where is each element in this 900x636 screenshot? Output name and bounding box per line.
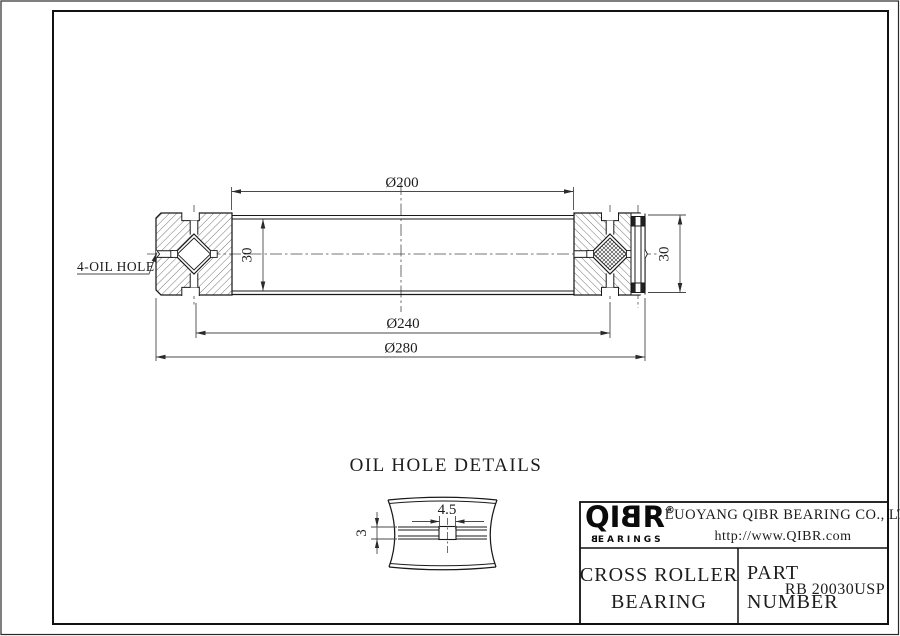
mirrored-b-glyph: B [620, 503, 642, 532]
detail-view: OIL HOLE DETAILS 4.5 3 [350, 455, 543, 570]
drawing-sheet: Ø200 30 30 Ø240 Ø280 [0, 0, 900, 636]
dim-hole-depth: 3 [354, 512, 397, 554]
company-name: LUOYANG QIBR BEARING CO., LTD [665, 507, 900, 523]
left-ring-section [156, 212, 232, 296]
dim-width-left: 30 [240, 219, 266, 291]
dim-outer-value: Ø280 [384, 341, 417, 357]
registered-mark: ® [665, 505, 675, 516]
right-ring-section [574, 212, 647, 296]
oil-hole-callout-label: 4-OIL HOLE [77, 259, 155, 274]
part-number-value: RB 20030USP [785, 581, 885, 598]
brand-wordmark: QIBR® [585, 503, 675, 532]
dim-pitch: Ø240 [196, 303, 610, 338]
brand-subtitle: BEARINGS [588, 535, 675, 545]
dim-width-left-value: 30 [240, 248, 256, 263]
engineering-drawing: Ø200 30 30 Ø240 Ø280 [0, 0, 900, 636]
company-url: http://www.QIBR.com [715, 529, 852, 544]
edge-notch [645, 250, 647, 259]
dim-bore-value: Ø200 [385, 175, 418, 191]
oil-hole-callout: 4-OIL HOLE [77, 252, 157, 274]
brand-logo: QIBR® BEARINGS [585, 503, 675, 545]
bearing-section-view: Ø200 30 30 Ø240 Ø280 [77, 175, 686, 361]
dim-hole-dia-value: 4.5 [438, 502, 457, 518]
product-title-line2: BEARING [611, 591, 707, 613]
dim-hole-dia: 4.5 [412, 502, 484, 529]
detail-title: OIL HOLE DETAILS [350, 455, 543, 476]
dim-bore: Ø200 [232, 175, 574, 210]
dim-pitch-value: Ø240 [386, 316, 419, 332]
dim-width-right-value: 30 [657, 247, 673, 262]
mounting-bolt [631, 214, 645, 295]
dim-width-right: 30 [648, 215, 686, 293]
bore-region [232, 216, 574, 295]
product-title-line1: CROSS ROLLER [580, 564, 738, 586]
dim-hole-depth-value: 3 [354, 529, 370, 537]
